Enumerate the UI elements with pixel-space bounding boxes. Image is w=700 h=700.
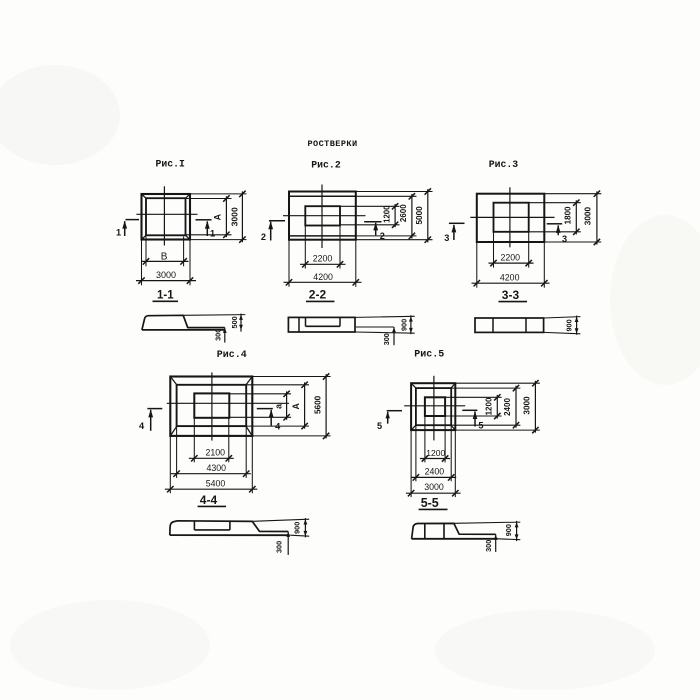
svg-text:4-4: 4-4 xyxy=(200,493,218,507)
svg-text:300: 300 xyxy=(382,333,391,345)
svg-text:5-5: 5-5 xyxy=(421,496,439,510)
svg-text:3: 3 xyxy=(562,234,567,244)
svg-text:900: 900 xyxy=(504,524,513,536)
svg-text:2400: 2400 xyxy=(425,466,445,476)
svg-text:2200: 2200 xyxy=(501,253,521,263)
svg-text:5600: 5600 xyxy=(313,395,322,414)
svg-text:300: 300 xyxy=(214,329,223,341)
svg-text:300: 300 xyxy=(484,540,493,552)
svg-text:2-2: 2-2 xyxy=(309,288,327,302)
svg-text:3000: 3000 xyxy=(523,396,532,415)
svg-text:1200: 1200 xyxy=(485,397,494,415)
svg-text:900: 900 xyxy=(565,319,574,331)
svg-text:1200: 1200 xyxy=(383,205,392,223)
svg-text:1: 1 xyxy=(116,228,121,238)
svg-text:500: 500 xyxy=(230,316,239,328)
svg-text:4: 4 xyxy=(139,421,145,431)
svg-text:3000: 3000 xyxy=(424,482,444,492)
svg-text:5400: 5400 xyxy=(206,479,226,489)
svg-text:B: B xyxy=(161,252,168,263)
svg-text:4200: 4200 xyxy=(313,272,333,282)
svg-text:300: 300 xyxy=(274,541,283,553)
svg-text:2600: 2600 xyxy=(399,204,408,222)
svg-text:Рис.5: Рис.5 xyxy=(414,349,444,360)
svg-text:2200: 2200 xyxy=(313,254,333,264)
svg-text:3000: 3000 xyxy=(583,207,592,226)
svg-text:a: a xyxy=(274,404,284,409)
svg-text:3-3: 3-3 xyxy=(502,288,520,302)
svg-text:Рис.4: Рис.4 xyxy=(217,350,247,361)
svg-text:Рис.3: Рис.3 xyxy=(489,159,519,170)
svg-text:2400: 2400 xyxy=(503,398,512,416)
svg-text:1200: 1200 xyxy=(426,448,445,458)
svg-text:3: 3 xyxy=(444,233,449,243)
svg-text:4200: 4200 xyxy=(500,272,520,282)
svg-text:РОСТВЕРКИ: РОСТВЕРКИ xyxy=(308,139,358,149)
svg-text:900: 900 xyxy=(292,522,301,534)
svg-text:4300: 4300 xyxy=(207,463,227,473)
svg-text:3000: 3000 xyxy=(230,207,240,226)
svg-text:A: A xyxy=(291,402,301,409)
svg-text:5000: 5000 xyxy=(415,206,424,225)
svg-text:2100: 2100 xyxy=(206,447,226,457)
svg-text:900: 900 xyxy=(399,319,408,331)
svg-text:A: A xyxy=(213,213,223,220)
svg-text:Рис.2: Рис.2 xyxy=(311,159,341,170)
svg-text:1: 1 xyxy=(210,228,215,238)
svg-text:3000: 3000 xyxy=(156,270,176,280)
svg-text:5: 5 xyxy=(377,421,382,431)
svg-text:Рис.I: Рис.I xyxy=(156,159,186,170)
svg-text:1-1: 1-1 xyxy=(157,290,174,302)
svg-text:2: 2 xyxy=(261,232,266,242)
svg-text:1800: 1800 xyxy=(564,206,573,224)
